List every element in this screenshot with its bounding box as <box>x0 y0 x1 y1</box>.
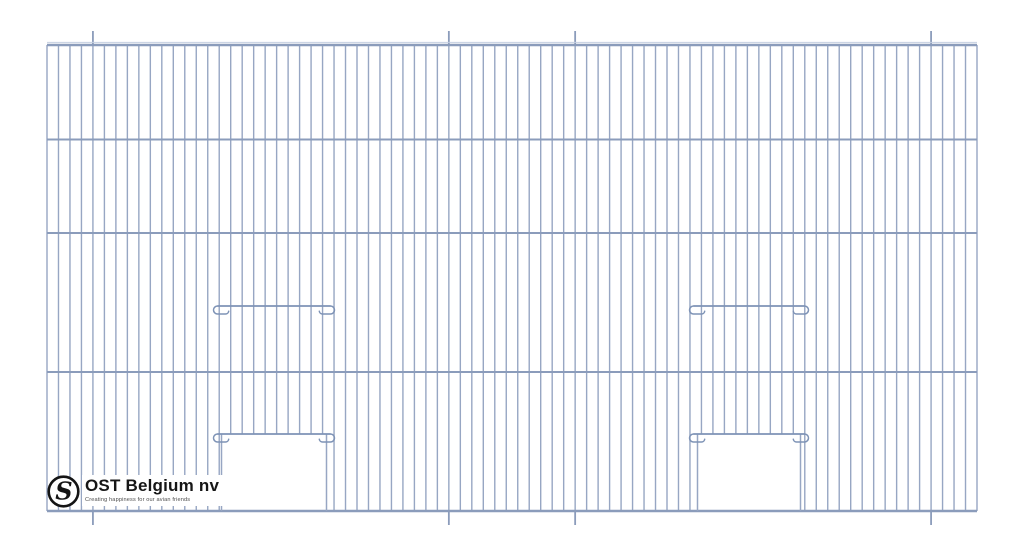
door-bar-hook-right <box>793 306 808 314</box>
cage-front-technical-drawing: S OST Belgium nv Creating happiness for … <box>0 0 1024 559</box>
logo-monogram-icon: S <box>45 473 82 510</box>
door-assembly-left <box>214 306 335 511</box>
horizontal-rails <box>47 42 977 511</box>
door-assembly-right <box>690 306 809 511</box>
brand-tagline: Creating happiness for our avian friends <box>85 497 219 503</box>
door-bar-hook-right <box>319 306 334 314</box>
logo-monogram-letter: S <box>55 476 72 505</box>
logo-text-block: OST Belgium nv Creating happiness for ou… <box>82 475 225 506</box>
door-bar-hook-left <box>214 306 229 314</box>
door-bar-hook-left <box>690 306 705 314</box>
brand-name: OST Belgium nv <box>85 477 219 495</box>
brand-logo: S OST Belgium nv Creating happiness for … <box>45 473 225 510</box>
vertical-wires <box>47 45 977 511</box>
